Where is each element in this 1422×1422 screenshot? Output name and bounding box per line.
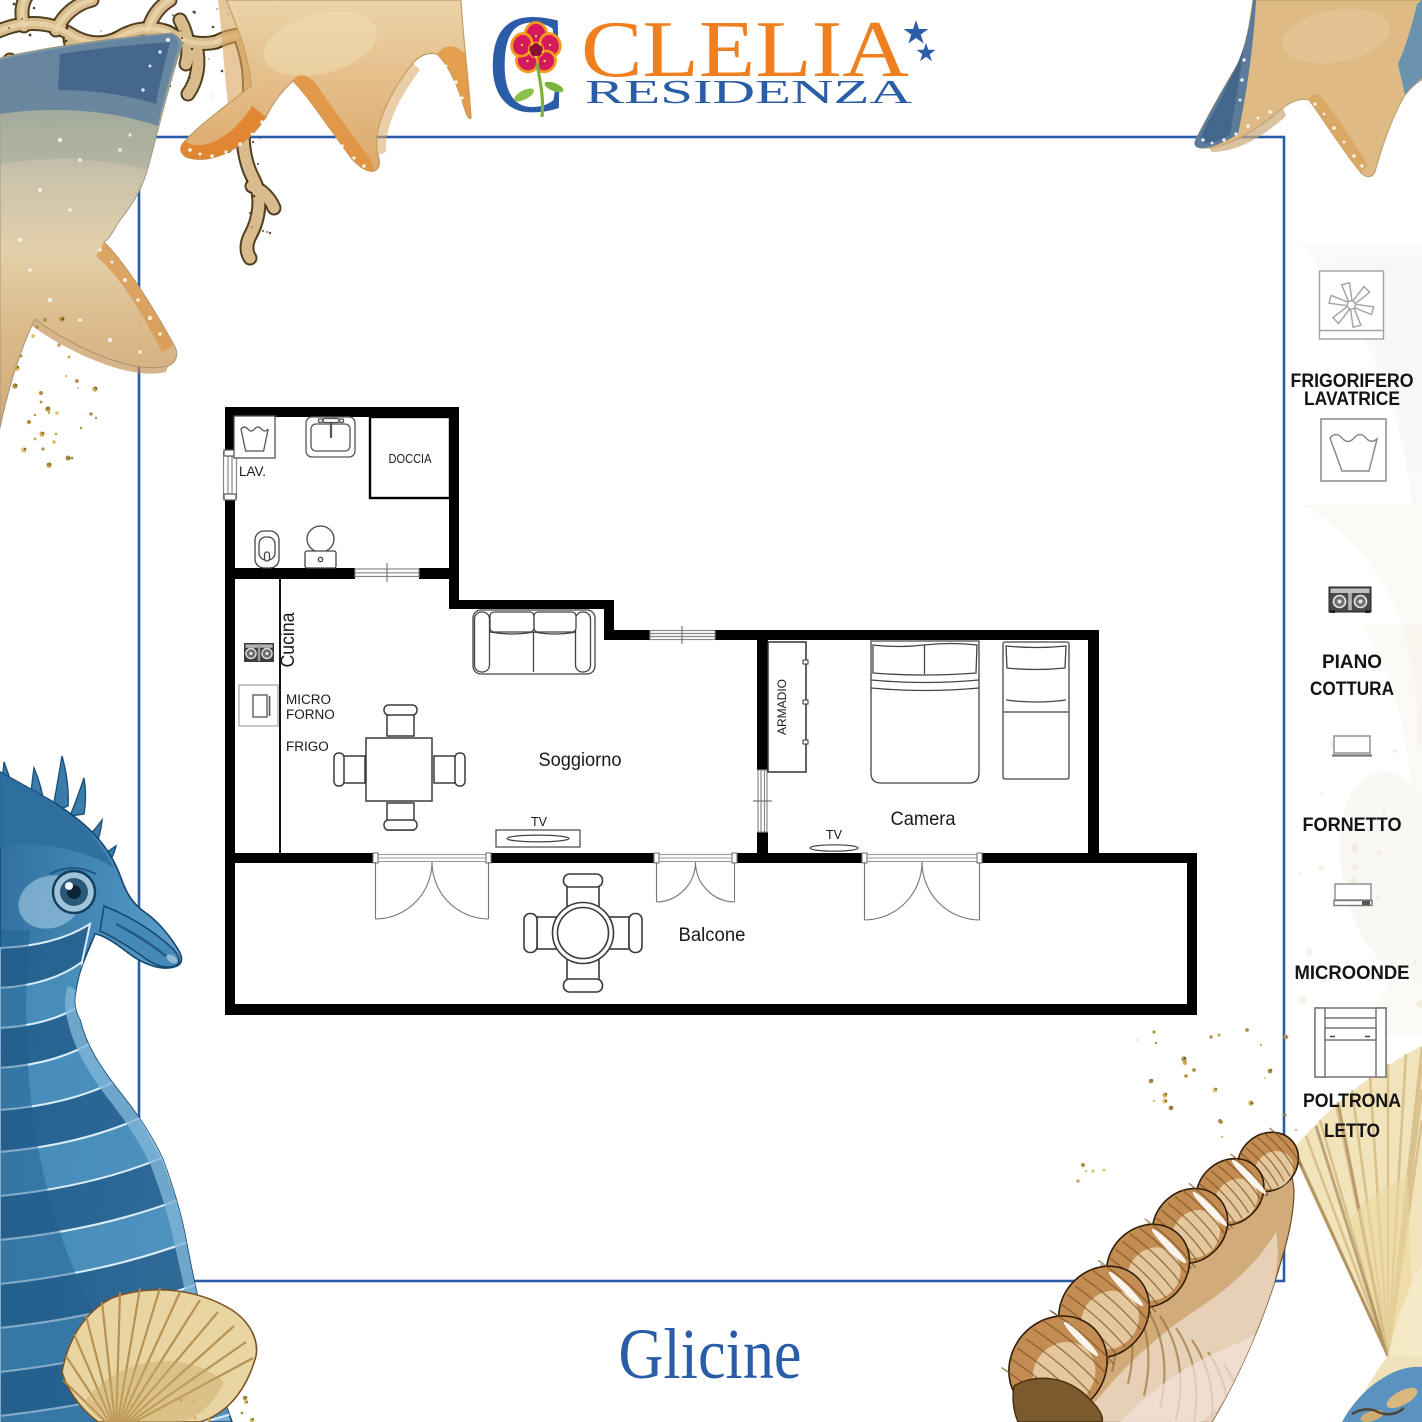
svg-text:FORNETTO: FORNETTO bbox=[1303, 814, 1402, 836]
svg-text:MICROONDE: MICROONDE bbox=[1295, 962, 1410, 984]
svg-text:LETTO: LETTO bbox=[1324, 1120, 1380, 1142]
svg-text:ARMADIO: ARMADIO bbox=[777, 679, 789, 735]
svg-text:MICRO: MICRO bbox=[286, 692, 331, 707]
svg-text:FRIGO: FRIGO bbox=[286, 739, 329, 754]
svg-text:Balcone: Balcone bbox=[679, 925, 746, 946]
svg-text:Camera: Camera bbox=[891, 808, 956, 830]
svg-text:POLTRONA: POLTRONA bbox=[1303, 1090, 1401, 1112]
svg-text:PIANO: PIANO bbox=[1322, 651, 1382, 673]
svg-text:FORNO: FORNO bbox=[286, 707, 335, 722]
svg-text:TV: TV bbox=[531, 815, 548, 829]
svg-text:LAV.: LAV. bbox=[239, 464, 266, 479]
svg-text:LAVATRICE: LAVATRICE bbox=[1304, 388, 1400, 410]
svg-text:Cucina: Cucina bbox=[278, 612, 299, 667]
svg-text:COTTURA: COTTURA bbox=[1310, 678, 1394, 700]
svg-text:Soggiorno: Soggiorno bbox=[539, 749, 622, 771]
svg-text:RESIDENZA: RESIDENZA bbox=[585, 74, 913, 111]
svg-text:Glicine: Glicine bbox=[619, 1314, 802, 1394]
svg-text:DOCCIA: DOCCIA bbox=[389, 451, 432, 466]
svg-text:TV: TV bbox=[826, 828, 843, 842]
